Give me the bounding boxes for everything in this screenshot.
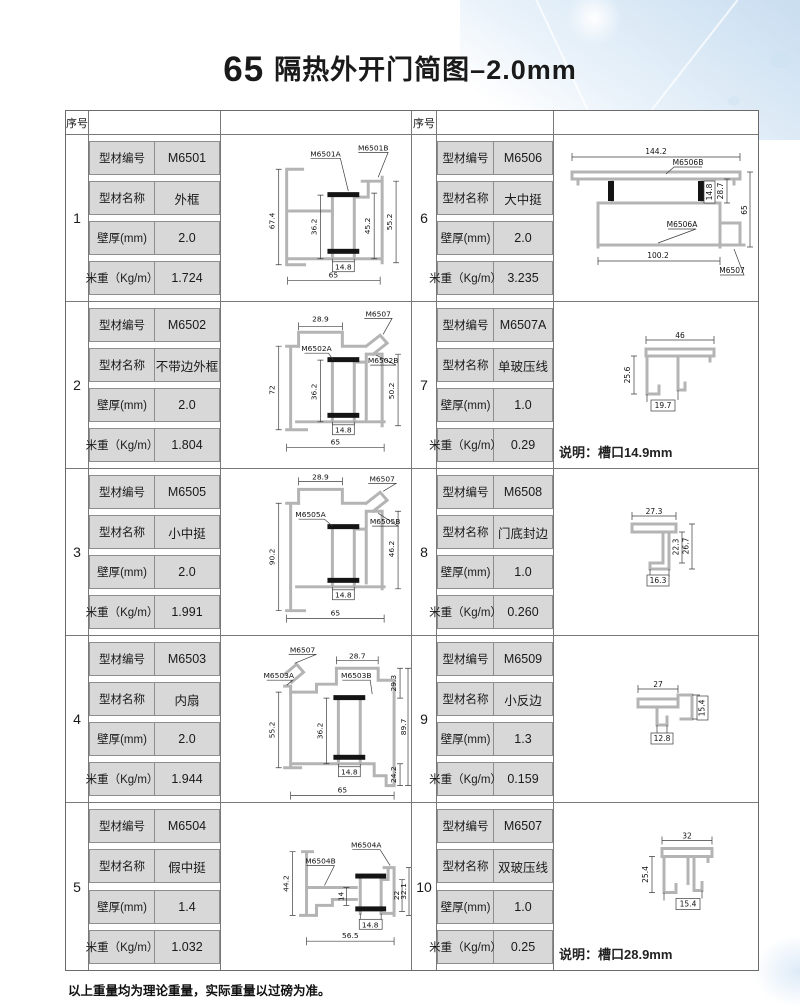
field-row-profile-code: 型材编号M6507 (437, 809, 553, 843)
part-label: M6502A (301, 344, 332, 353)
dim-text: 25.4 (641, 866, 650, 883)
entry-2-fields: 型材编号M6502型材名称不带边外框壁厚(mm)2.0米重（Kg/m）1.804 (89, 302, 221, 469)
field-label: 壁厚(mm) (438, 222, 494, 254)
field-label: 米重（Kg/m） (90, 429, 155, 461)
field-label: 米重（Kg/m） (90, 931, 155, 963)
field-value: 2.0 (155, 556, 219, 588)
profile-drawing-m6503: 28.7 29.3 55.2 36.2 89.7 14.8 24.2 65 M6… (221, 636, 411, 802)
field-value: M6508 (494, 476, 552, 508)
field-row-profile-name: 型材名称双玻压线 (437, 849, 553, 883)
field-value: 1.944 (155, 763, 219, 795)
profile-walls (662, 849, 712, 893)
field-label: 型材编号 (90, 810, 155, 842)
field-value: 1.4 (155, 891, 219, 923)
field-label: 米重（Kg/m） (438, 262, 494, 294)
field-value: 外框 (155, 182, 219, 214)
field-value: 1.991 (155, 596, 219, 628)
field-value: 单玻压线 (494, 349, 552, 381)
entry-8-drawing-cell: 27.3 22.3 26.7 16.3 (554, 469, 758, 636)
field-row-meter-weight: 米重（Kg/m）0.260 (437, 595, 553, 629)
field-row-profile-code: 型材编号M6503 (89, 642, 220, 676)
field-row-profile-code: 型材编号M6506 (437, 141, 553, 175)
field-label: 壁厚(mm) (438, 556, 494, 588)
dim-text: 19.7 (655, 401, 672, 410)
background-decoration-bottom-right (754, 935, 800, 1007)
field-row-wall-thickness: 壁厚(mm)2.0 (437, 221, 553, 255)
field-label: 型材编号 (90, 643, 155, 675)
field-row-profile-code: 型材编号M6509 (437, 642, 553, 676)
part-label: M6505A (295, 510, 326, 519)
entry-6-drawing-cell: 144.2 14.8 28.7 65 100.2 M6506B M6506A M… (554, 135, 758, 302)
dim-text: 14.8 (341, 768, 358, 777)
field-value: M6503 (155, 643, 219, 675)
title-text: 隔热外开门简图–2.0mm (274, 55, 577, 85)
field-value: 2.0 (155, 222, 219, 254)
field-row-profile-name: 型材名称外框 (89, 181, 220, 215)
field-label: 壁厚(mm) (90, 723, 155, 755)
dim-text: 89.7 (399, 718, 408, 735)
header-empty (437, 111, 554, 135)
dim-text: 55.2 (385, 214, 394, 231)
footer-note: 以上重量均为理论重量，实际重量以过磅为准。 (68, 980, 331, 999)
field-value: M6509 (494, 643, 552, 675)
entry-6-fields: 型材编号M6506型材名称大中挺壁厚(mm)2.0米重（Kg/m）3.235 (437, 135, 554, 302)
note-text: 说明：槽口28.9mm (559, 944, 672, 963)
field-row-profile-code: 型材编号M6507A (437, 308, 553, 342)
field-row-profile-name: 型材名称小反边 (437, 682, 553, 716)
dim-text: 22.3 (672, 538, 681, 555)
thermal-breaks (608, 181, 704, 201)
dim-text: 28.9 (312, 314, 329, 323)
header-empty (89, 111, 221, 135)
part-label: M6507 (719, 266, 745, 275)
field-value: M6502 (155, 309, 219, 341)
dim-text: 28.7 (716, 182, 725, 199)
field-label: 壁厚(mm) (90, 556, 155, 588)
field-label: 型材名称 (90, 516, 155, 548)
field-label: 型材名称 (438, 683, 494, 715)
field-label: 型材名称 (90, 182, 155, 214)
field-row-profile-code: 型材编号M6504 (89, 809, 220, 843)
field-value: 1.3 (494, 723, 552, 755)
entry-7-fields: 型材编号M6507A型材名称单玻压线壁厚(mm)1.0米重（Kg/m）0.29 (437, 302, 554, 469)
field-value: 1.0 (494, 556, 552, 588)
field-row-wall-thickness: 壁厚(mm)2.0 (89, 555, 220, 589)
field-label: 型材编号 (438, 142, 494, 174)
field-value: 门底封边 (494, 516, 552, 548)
field-row-profile-name: 型材名称门底封边 (437, 515, 553, 549)
field-value: 双玻压线 (494, 850, 552, 882)
field-label: 米重（Kg/m） (438, 596, 494, 628)
dim-text: 28.9 (312, 472, 329, 481)
entry-1-fields: 型材编号M6501型材名称外框壁厚(mm)2.0米重（Kg/m）1.724 (89, 135, 221, 302)
entry-10-fields: 型材编号M6507型材名称双玻压线壁厚(mm)1.0米重（Kg/m）0.25 (437, 803, 554, 970)
field-label: 米重（Kg/m） (90, 262, 155, 294)
part-label: M6504A (351, 841, 382, 850)
profile-walls (646, 349, 714, 394)
profile-drawing-m6508: 27.3 22.3 26.7 16.3 (554, 469, 758, 635)
entry-4-fields: 型材编号M6503型材名称内扇壁厚(mm)2.0米重（Kg/m）1.944 (89, 636, 221, 803)
field-row-wall-thickness: 壁厚(mm)1.3 (437, 722, 553, 756)
field-row-meter-weight: 米重（Kg/m）1.991 (89, 595, 220, 629)
field-value: 1.032 (155, 931, 219, 963)
field-value: 假中挺 (155, 850, 219, 882)
header-seq-right: 序号 (412, 111, 437, 135)
field-label: 壁厚(mm) (438, 389, 494, 421)
dim-text: 90.2 (268, 549, 277, 566)
field-label: 型材编号 (438, 309, 494, 341)
field-row-wall-thickness: 壁厚(mm)1.0 (437, 388, 553, 422)
part-label: M6501B (358, 143, 389, 152)
field-row-meter-weight: 米重（Kg/m）0.159 (437, 762, 553, 796)
field-value: 2.0 (155, 723, 219, 755)
field-value: 2.0 (155, 389, 219, 421)
entry-3-fields: 型材编号M6505型材名称小中挺壁厚(mm)2.0米重（Kg/m）1.991 (89, 469, 221, 636)
profile-drawing-m6504: 44.2 14 22 32.1 14.8 56.5 M6504B M6504A (221, 803, 411, 970)
field-label: 壁厚(mm) (438, 891, 494, 923)
field-row-wall-thickness: 壁厚(mm)2.0 (89, 388, 220, 422)
dim-text: 100.2 (647, 251, 669, 260)
dim-text: 72 (268, 385, 277, 394)
dim-text: 50.2 (387, 383, 396, 400)
field-value: M6506 (494, 142, 552, 174)
dim-text: 36.2 (315, 723, 324, 740)
field-label: 型材编号 (90, 309, 155, 341)
field-value: 0.260 (494, 596, 552, 628)
field-row-profile-code: 型材编号M6508 (437, 475, 553, 509)
dim-text: 14.8 (705, 183, 714, 200)
dim-text: 15.4 (698, 699, 707, 716)
dim-text: 46 (675, 331, 685, 340)
note-text: 说明：槽口14.9mm (559, 442, 672, 461)
entry-2-drawing-cell: 28.9 72 36.2 50.2 14.8 65 M6507 M6502A M… (221, 302, 412, 469)
dim-text: 65 (331, 609, 341, 618)
field-label: 型材名称 (438, 182, 494, 214)
part-label: M6507 (290, 645, 316, 654)
field-label: 型材名称 (438, 850, 494, 882)
dim-text: 36.2 (309, 384, 318, 401)
dim-text: 65 (338, 786, 348, 795)
field-label: 型材名称 (438, 516, 494, 548)
dim-text: 27.3 (646, 507, 663, 516)
dim-text: 32 (682, 832, 692, 841)
profile-drawing-m6505: 28.9 90.2 46.2 14.8 65 M6507 M6505A M650… (221, 469, 411, 635)
field-label: 型材编号 (438, 476, 494, 508)
field-value: 1.804 (155, 429, 219, 461)
field-row-profile-name: 型材名称假中挺 (89, 849, 220, 883)
field-value: M6507 (494, 810, 552, 842)
entry-5-fields: 型材编号M6504型材名称假中挺壁厚(mm)1.4米重（Kg/m）1.032 (89, 803, 221, 970)
field-label: 壁厚(mm) (90, 389, 155, 421)
dim-text: 15.4 (680, 900, 697, 909)
entry-9-fields: 型材编号M6509型材名称小反边壁厚(mm)1.3米重（Kg/m）0.159 (437, 636, 554, 803)
field-value: 1.724 (155, 262, 219, 294)
dim-text: 32.1 (399, 883, 408, 900)
field-value: 大中挺 (494, 182, 552, 214)
field-value: 2.0 (494, 222, 552, 254)
field-row-profile-name: 型材名称大中挺 (437, 181, 553, 215)
field-label: 型材编号 (438, 643, 494, 675)
profile-drawing-m6502: 28.9 72 36.2 50.2 14.8 65 M6507 M6502A M… (221, 302, 411, 468)
dim-text: 55.2 (268, 722, 277, 739)
dim-text: 26.7 (682, 537, 691, 554)
dim-text: 45.2 (363, 218, 372, 235)
field-row-meter-weight: 米重（Kg/m）1.724 (89, 261, 220, 295)
field-label: 型材编号 (438, 810, 494, 842)
profile-table: 序号 序号 1 型材编号M6501型材名称外框壁厚(mm)2.0米重（Kg/m）… (65, 110, 759, 971)
title-number: 65 (223, 50, 264, 89)
field-label: 米重（Kg/m） (90, 763, 155, 795)
field-row-meter-weight: 米重（Kg/m）1.944 (89, 762, 220, 796)
field-label: 型材编号 (90, 476, 155, 508)
field-value: M6501 (155, 142, 219, 174)
part-label: M6507 (369, 474, 395, 483)
field-row-meter-weight: 米重（Kg/m）3.235 (437, 261, 553, 295)
field-value: 内扇 (155, 683, 219, 715)
field-row-meter-weight: 米重（Kg/m）0.29 (437, 428, 553, 462)
header-empty (221, 111, 412, 135)
profile-walls (632, 524, 676, 569)
field-value: 3.235 (494, 262, 552, 294)
field-label: 壁厚(mm) (438, 723, 494, 755)
field-row-profile-name: 型材名称小中挺 (89, 515, 220, 549)
field-value: M6504 (155, 810, 219, 842)
field-value: 0.159 (494, 763, 552, 795)
field-value: 0.29 (494, 429, 552, 461)
decor-flare (566, 0, 622, 46)
part-label: M6507 (365, 309, 391, 318)
header-empty (554, 111, 758, 135)
field-label: 米重（Kg/m） (438, 931, 494, 963)
entry-7-drawing-cell: 46 25.6 19.7 说明：槽口14.9mm (554, 302, 758, 469)
dim-text: 44.2 (282, 875, 291, 892)
dim-text: 14.8 (335, 426, 352, 435)
dim-text: 14.8 (362, 920, 379, 929)
field-value: 1.0 (494, 891, 552, 923)
field-label: 壁厚(mm) (90, 222, 155, 254)
dim-text: 27 (653, 680, 663, 689)
field-value: 0.25 (494, 931, 552, 963)
field-row-wall-thickness: 壁厚(mm)2.0 (89, 722, 220, 756)
entry-1-drawing-cell: 67.4 36.2 45.2 55.2 14.8 65 M6501A M6501… (221, 135, 412, 302)
field-row-wall-thickness: 壁厚(mm)1.0 (437, 890, 553, 924)
dim-text: 29.3 (389, 675, 398, 692)
field-row-meter-weight: 米重（Kg/m）1.804 (89, 428, 220, 462)
part-label: M6504B (305, 857, 336, 866)
part-label: M6503B (341, 671, 372, 680)
entry-4-drawing-cell: 28.7 29.3 55.2 36.2 89.7 14.8 24.2 65 M6… (221, 636, 412, 803)
field-value: 1.0 (494, 389, 552, 421)
field-label: 型材编号 (90, 142, 155, 174)
dimension-lines (631, 336, 714, 411)
entry-5-drawing-cell: 44.2 14 22 32.1 14.8 56.5 M6504B M6504A (221, 803, 412, 970)
part-label: M6506B (673, 158, 704, 167)
profile-drawing-m6501: 67.4 36.2 45.2 55.2 14.8 65 M6501A M6501… (221, 135, 411, 301)
field-value: M6507A (494, 309, 552, 341)
part-label: M6506A (667, 220, 699, 229)
field-row-profile-name: 型材名称单玻压线 (437, 348, 553, 382)
entry-9-drawing-cell: 27 15.4 12.8 (554, 636, 758, 803)
dim-text: 14 (336, 891, 345, 901)
field-row-meter-weight: 米重（Kg/m）1.032 (89, 930, 220, 964)
dim-text: 16.3 (650, 576, 667, 585)
decor-bubble (728, 96, 740, 106)
entry-10-drawing-cell: 32 25.4 15.4 说明：槽口28.9mm (554, 803, 758, 970)
dim-text: 65 (331, 438, 341, 447)
dim-text: 24.2 (389, 766, 398, 783)
field-row-profile-name: 型材名称内扇 (89, 682, 220, 716)
entry-8-fields: 型材编号M6508型材名称门底封边壁厚(mm)1.0米重（Kg/m）0.260 (437, 469, 554, 636)
field-label: 米重（Kg/m） (90, 596, 155, 628)
dim-text: 14.8 (335, 591, 352, 600)
header-seq-left: 序号 (66, 111, 89, 135)
part-label: M6503A (263, 671, 294, 680)
field-label: 米重（Kg/m） (438, 429, 494, 461)
part-label: M6505B (370, 517, 401, 526)
field-label: 型材名称 (90, 349, 155, 381)
dim-text: 46.2 (387, 541, 396, 558)
field-row-profile-code: 型材编号M6502 (89, 308, 220, 342)
dim-text: 36.2 (309, 219, 318, 236)
field-row-profile-name: 型材名称不带边外框 (89, 348, 220, 382)
part-label: M6501A (310, 149, 341, 158)
field-row-wall-thickness: 壁厚(mm)1.4 (89, 890, 220, 924)
dim-text: 28.7 (349, 651, 366, 660)
field-row-wall-thickness: 壁厚(mm)1.0 (437, 555, 553, 589)
field-value: 小中挺 (155, 516, 219, 548)
profile-drawing-m6509: 27 15.4 12.8 (554, 636, 758, 802)
field-value: 小反边 (494, 683, 552, 715)
dim-text: 12.8 (654, 734, 671, 743)
dim-text: 65 (740, 205, 749, 215)
dim-text: 56.5 (342, 931, 359, 940)
entry-3-drawing-cell: 28.9 90.2 46.2 14.8 65 M6507 M6505A M650… (221, 469, 412, 636)
dim-text: 25.6 (623, 366, 632, 383)
field-label: 型材名称 (438, 349, 494, 381)
field-value: M6505 (155, 476, 219, 508)
field-row-meter-weight: 米重（Kg/m）0.25 (437, 930, 553, 964)
field-label: 壁厚(mm) (90, 891, 155, 923)
profile-walls (638, 695, 692, 725)
profile-drawing-m6506: 144.2 14.8 28.7 65 100.2 M6506B M6506A M… (554, 135, 758, 301)
field-value: 不带边外框 (155, 349, 219, 381)
field-label: 型材名称 (90, 683, 155, 715)
field-label: 米重（Kg/m） (438, 763, 494, 795)
field-row-wall-thickness: 壁厚(mm)2.0 (89, 221, 220, 255)
field-row-profile-code: 型材编号M6505 (89, 475, 220, 509)
dim-text: 144.2 (645, 147, 667, 156)
dim-text: 67.4 (268, 212, 277, 229)
page-title: 65隔热外开门简图–2.0mm (0, 48, 800, 90)
part-label: M6502B (368, 356, 399, 365)
field-row-profile-code: 型材编号M6501 (89, 141, 220, 175)
dim-text: 65 (329, 271, 339, 280)
field-label: 型材名称 (90, 850, 155, 882)
